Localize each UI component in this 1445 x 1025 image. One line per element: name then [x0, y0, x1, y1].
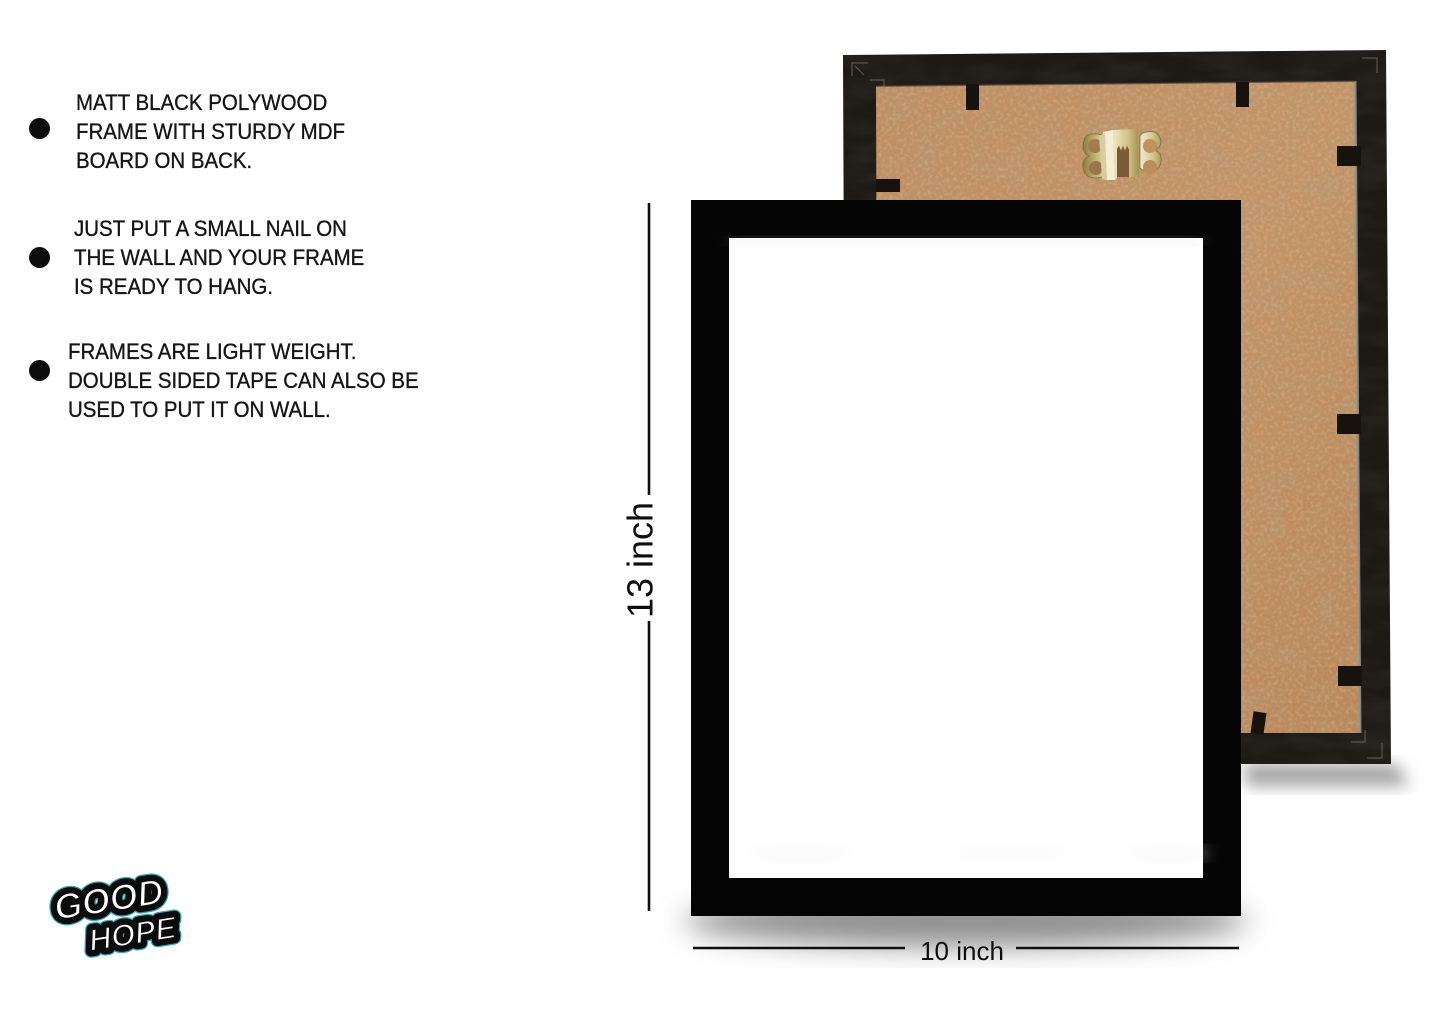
svg-text:10 inch: 10 inch [920, 936, 1004, 966]
svg-text:13 inch: 13 inch [620, 502, 661, 618]
